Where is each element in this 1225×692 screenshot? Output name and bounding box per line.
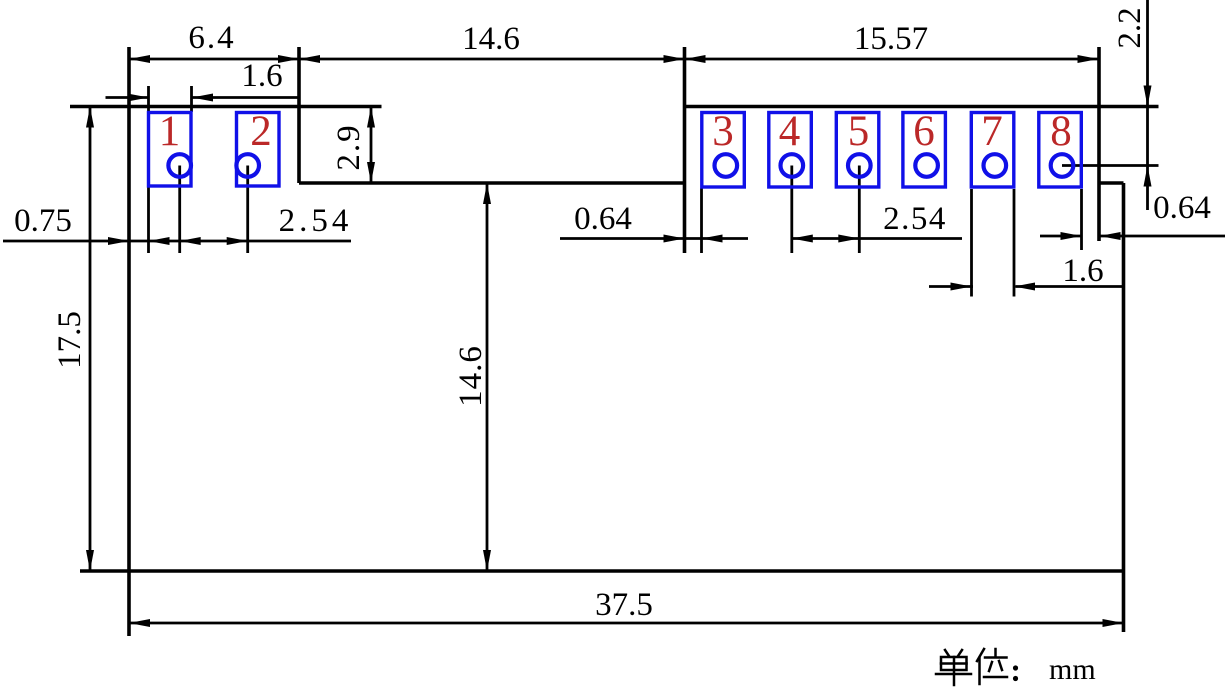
svg-text:mm: mm: [1049, 653, 1096, 686]
svg-text:0.64: 0.64: [574, 201, 632, 237]
svg-text:2.54: 2.54: [279, 203, 353, 239]
svg-text:8: 8: [1050, 108, 1072, 155]
svg-text:2: 2: [250, 108, 272, 155]
svg-text:6: 6: [913, 108, 935, 155]
svg-text:4: 4: [779, 108, 801, 155]
svg-text:1: 1: [159, 108, 181, 155]
svg-text:1.6: 1.6: [241, 58, 282, 94]
svg-text:6.4: 6.4: [188, 20, 235, 56]
svg-text:37.5: 37.5: [595, 587, 653, 623]
svg-text:5: 5: [848, 108, 870, 155]
svg-text:0.75: 0.75: [14, 203, 72, 239]
svg-text:17.5: 17.5: [52, 311, 88, 369]
svg-text:14.6: 14.6: [462, 21, 520, 57]
svg-text:2.2: 2.2: [1112, 7, 1148, 48]
svg-text:0.64: 0.64: [1153, 190, 1211, 226]
svg-text:1.6: 1.6: [1062, 253, 1103, 289]
svg-text:3: 3: [712, 108, 734, 155]
svg-text:14.6: 14.6: [453, 345, 489, 407]
svg-text:15.57: 15.57: [854, 21, 928, 57]
svg-text:7: 7: [981, 108, 1003, 155]
svg-text:2.9: 2.9: [331, 123, 367, 170]
svg-text:2.54: 2.54: [883, 201, 947, 237]
